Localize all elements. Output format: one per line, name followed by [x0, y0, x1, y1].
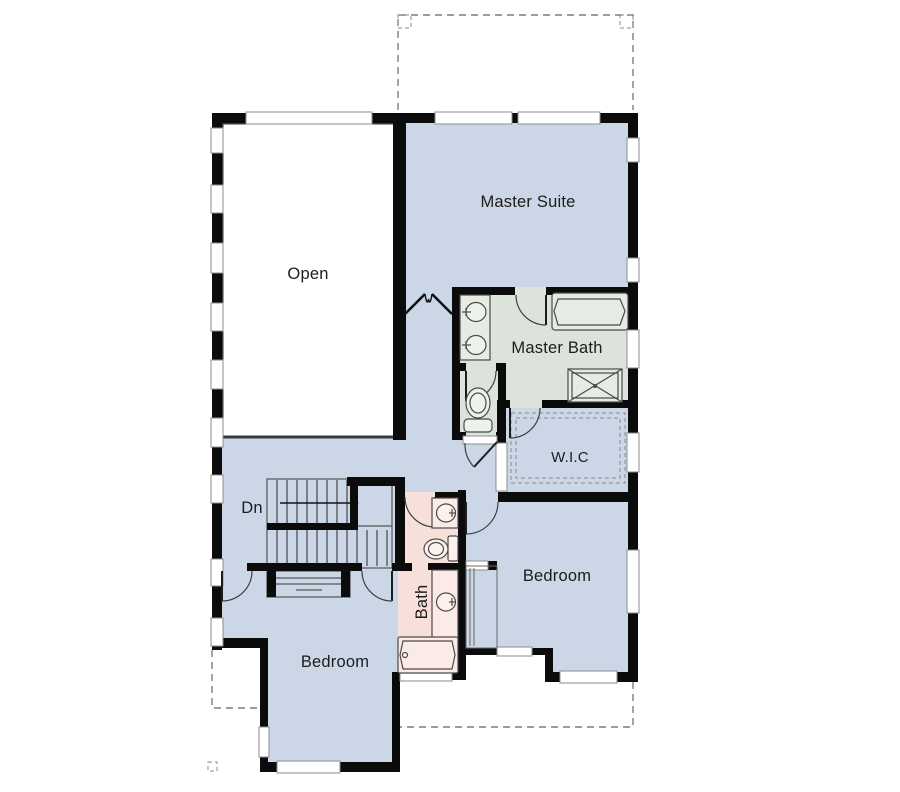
- window: [627, 258, 639, 282]
- shower: [568, 369, 622, 402]
- window: [211, 185, 223, 213]
- window: [518, 112, 600, 124]
- label-bath: Bath: [413, 585, 431, 620]
- window: [211, 475, 223, 503]
- label-open: Open: [287, 265, 328, 283]
- label-master-suite: Master Suite: [480, 193, 575, 211]
- window: [211, 418, 223, 447]
- window: [246, 112, 372, 124]
- label-stairs-dn: Dn: [241, 499, 263, 517]
- window: [560, 671, 617, 683]
- window: [627, 138, 639, 162]
- floor-plan: Open Master Suite Master Bath W.I.C Bedr…: [0, 0, 900, 792]
- sink-lower: [432, 570, 458, 638]
- cased-opening: [496, 443, 507, 491]
- window: [211, 243, 223, 273]
- window: [497, 647, 532, 656]
- window: [259, 727, 269, 757]
- label-master-bath: Master Bath: [511, 339, 602, 357]
- window: [211, 128, 223, 153]
- window: [627, 550, 639, 613]
- cased-opening: [463, 436, 497, 444]
- window: [627, 433, 639, 472]
- window: [211, 360, 223, 389]
- window: [627, 330, 639, 368]
- double-vanity-sinks: [460, 295, 490, 360]
- label-bedroom-left: Bedroom: [301, 653, 369, 671]
- sink-upper: [432, 498, 458, 528]
- bathtub: [398, 637, 458, 673]
- window: [277, 761, 340, 773]
- window: [435, 112, 512, 124]
- bathtub: [552, 293, 628, 330]
- label-wic: W.I.C: [551, 449, 589, 466]
- toilet: [464, 388, 492, 432]
- window: [211, 618, 223, 646]
- window: [211, 303, 223, 331]
- label-bedroom-right: Bedroom: [523, 567, 591, 585]
